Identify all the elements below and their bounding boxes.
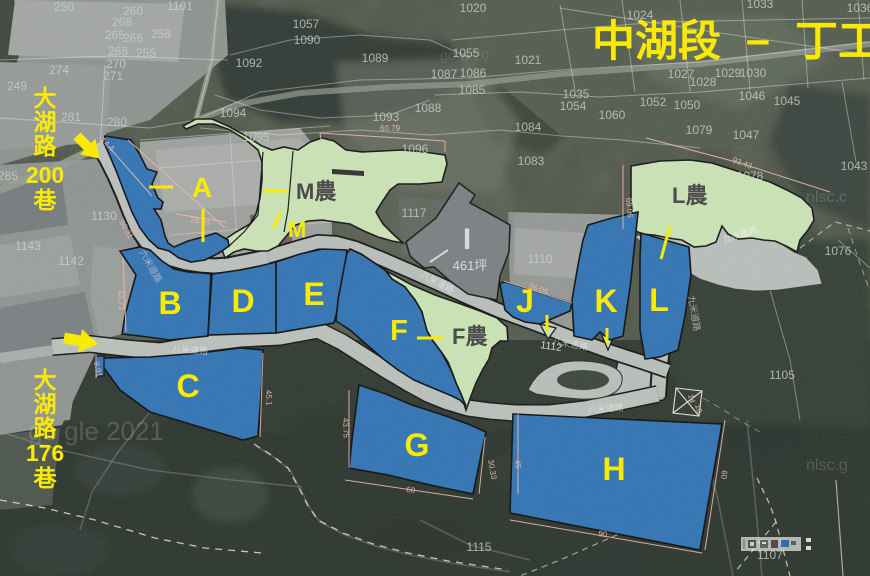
svg-text:176: 176 [26,440,64,466]
svg-text:M: M [288,217,306,242]
svg-text:M農: M農 [296,179,336,204]
svg-text:H: H [602,451,625,487]
svg-text:C: C [176,368,199,404]
svg-text:大: 大 [34,367,57,393]
svg-text:G: G [405,427,430,463]
svg-text:F: F [390,315,408,347]
svg-text:大: 大 [34,85,57,111]
svg-text:湖: 湖 [34,109,57,135]
svg-text:湖: 湖 [34,391,57,417]
svg-text:461坪: 461坪 [453,258,488,273]
svg-text:E: E [303,276,324,312]
svg-text:L農: L農 [672,183,707,208]
svg-text:200: 200 [26,162,64,188]
svg-text:A: A [192,172,212,203]
svg-text:–: – [746,16,770,64]
svg-text:巷: 巷 [33,187,58,213]
svg-text:F農: F農 [452,324,487,349]
svg-text:K: K [594,283,617,319]
svg-text:巷: 巷 [33,465,58,491]
svg-text:中湖段: 中湖段 [592,18,721,66]
svg-text:丁工: 丁工 [795,18,870,66]
svg-text:I: I [463,223,471,256]
svg-text:路: 路 [34,415,58,441]
svg-text:D: D [231,283,254,319]
svg-text:J: J [516,283,534,319]
svg-text:路: 路 [34,133,58,159]
svg-text:B: B [158,285,181,321]
svg-text:L: L [649,282,669,318]
